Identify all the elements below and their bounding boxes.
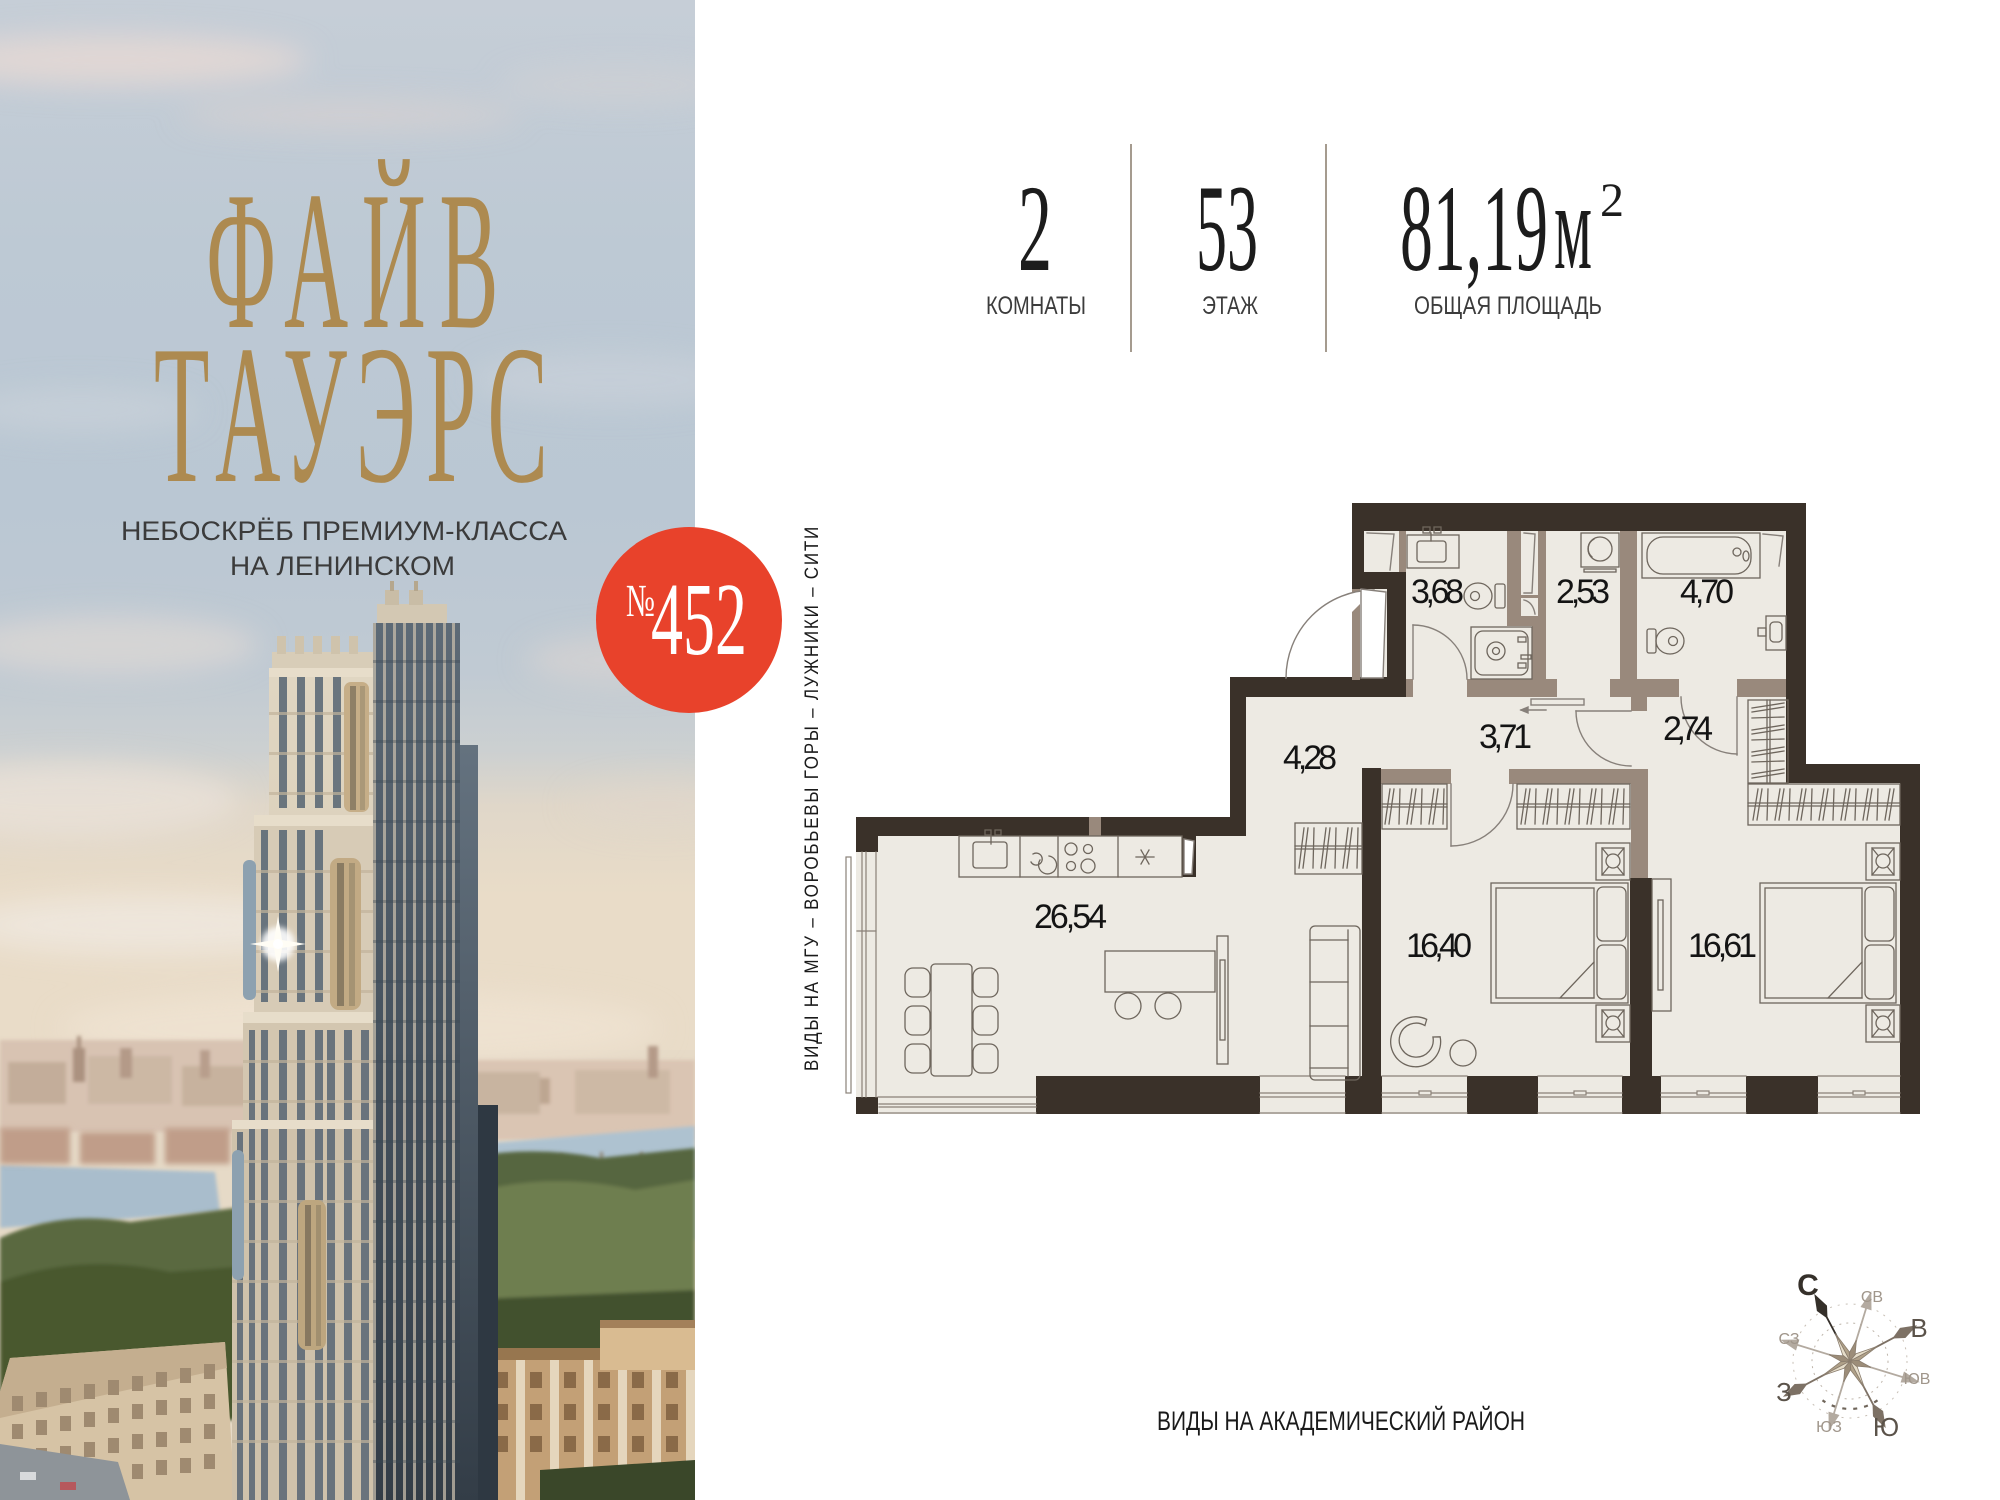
svg-text:ЮЗ: ЮЗ xyxy=(1816,1419,1842,1436)
svg-text:С: С xyxy=(1797,1269,1819,1302)
svg-text:Ю: Ю xyxy=(1873,1412,1899,1442)
svg-text:НЕБОСКРЁБ ПРЕМИУМ-КЛАССА: НЕБОСКРЁБ ПРЕМИУМ-КЛАССА xyxy=(121,516,567,546)
svg-text:53: 53 xyxy=(1196,160,1258,297)
svg-text:ЭТАЖ: ЭТАЖ xyxy=(1202,292,1258,320)
svg-text:81,19: 81,19 xyxy=(1400,160,1548,297)
svg-text:2: 2 xyxy=(1600,174,1624,227)
svg-text:4,28: 4,28 xyxy=(1283,739,1337,777)
svg-text:ВИДЫ НА АКАДЕМИЧЕСКИЙ РАЙОН: ВИДЫ НА АКАДЕМИЧЕСКИЙ РАЙОН xyxy=(1157,1405,1525,1436)
svg-text:СВ: СВ xyxy=(1861,1289,1883,1306)
svg-text:26,54: 26,54 xyxy=(1034,898,1107,936)
svg-text:4,70: 4,70 xyxy=(1680,573,1734,611)
svg-text:ОБЩАЯ ПЛОЩАДЬ: ОБЩАЯ ПЛОЩАДЬ xyxy=(1414,292,1602,320)
svg-text:ВИДЫ НА МГУ – ВОРОБЬЕВЫ ГОРЫ –: ВИДЫ НА МГУ – ВОРОБЬЕВЫ ГОРЫ – ЛУЖНИКИ –… xyxy=(802,525,823,1071)
svg-text:СЗ: СЗ xyxy=(1778,1331,1799,1348)
svg-text:16,61: 16,61 xyxy=(1688,927,1757,965)
svg-text:ТАУЭРС: ТАУЭРС xyxy=(154,305,558,524)
svg-text:2: 2 xyxy=(1018,160,1052,297)
svg-text:НА ЛЕНИНСКОМ: НА ЛЕНИНСКОМ xyxy=(230,551,455,581)
svg-text:ЮВ: ЮВ xyxy=(1904,1371,1931,1388)
svg-text:452: 452 xyxy=(651,562,747,677)
svg-text:2,53: 2,53 xyxy=(1556,573,1610,611)
svg-text:З: З xyxy=(1776,1377,1792,1407)
svg-text:3,71: 3,71 xyxy=(1479,718,1532,756)
svg-text:м: м xyxy=(1554,158,1592,295)
svg-text:КОМНАТЫ: КОМНАТЫ xyxy=(986,292,1086,320)
svg-text:В: В xyxy=(1910,1313,1927,1343)
svg-text:2,74: 2,74 xyxy=(1663,710,1713,748)
svg-text:3,68: 3,68 xyxy=(1411,573,1464,611)
svg-text:16,40: 16,40 xyxy=(1406,927,1472,965)
